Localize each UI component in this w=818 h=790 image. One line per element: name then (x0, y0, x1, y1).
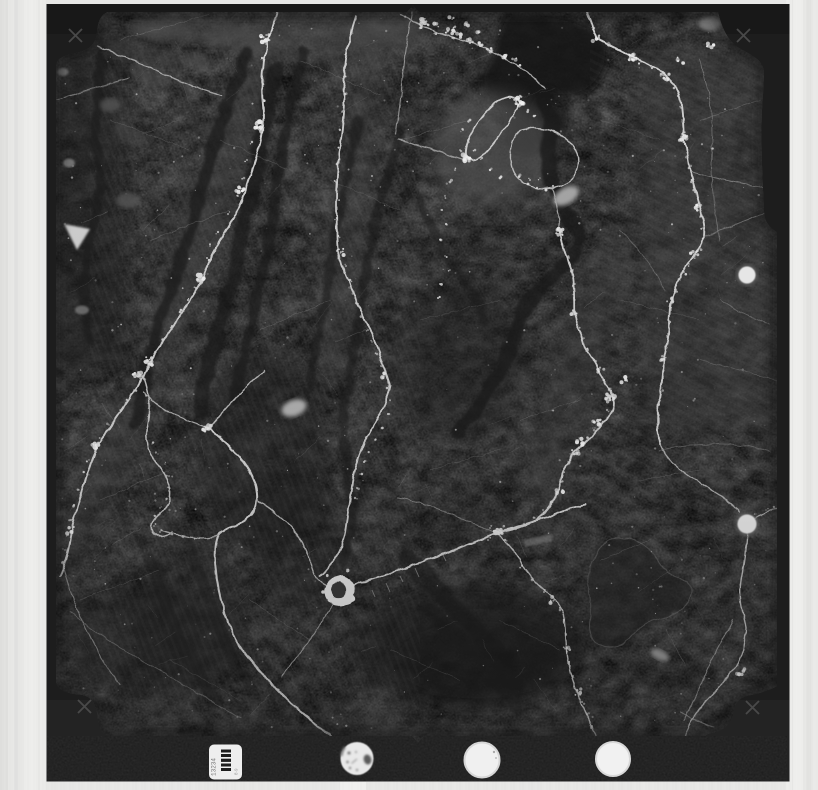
svg-text:13234: 13234 (211, 758, 218, 776)
svg-text:8·9: 8·9 (234, 768, 239, 775)
